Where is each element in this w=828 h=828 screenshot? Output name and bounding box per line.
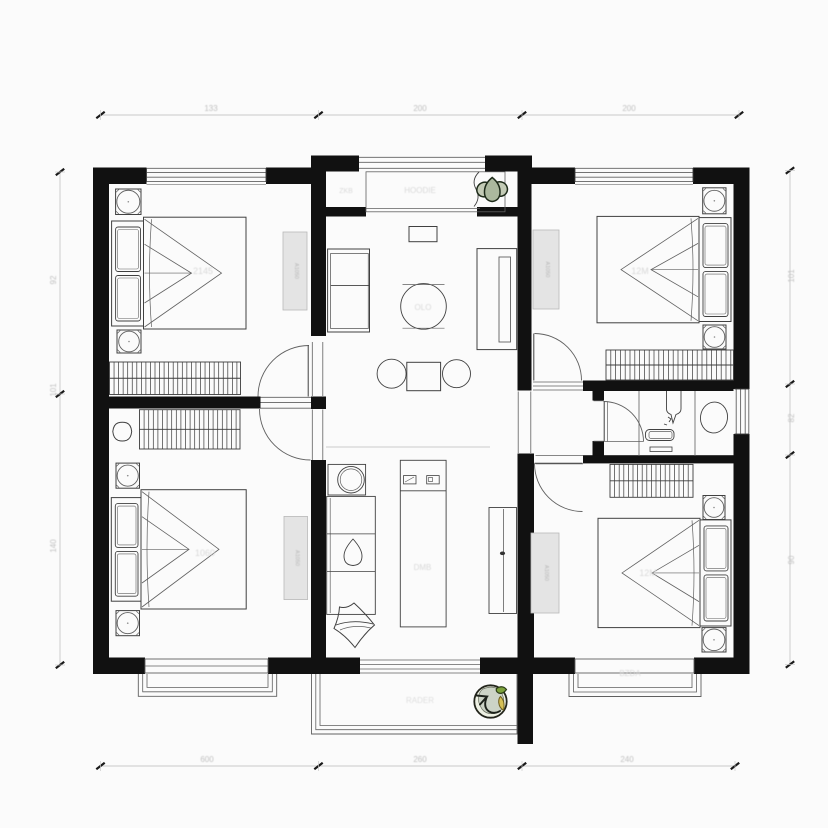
svg-text:600: 600 [200,755,214,764]
svg-text:200: 200 [622,104,636,113]
svg-text:101: 101 [49,383,58,397]
svg-text:A1050: A1050 [294,550,300,566]
svg-text:1060: 1060 [195,548,215,558]
svg-text:140: 140 [49,539,58,553]
svg-text:12M: 12M [631,266,649,276]
svg-text:92: 92 [49,275,58,284]
svg-text:200: 200 [413,104,427,113]
svg-text:A1050: A1050 [543,565,549,581]
svg-text:A1050: A1050 [293,263,299,279]
svg-text:260: 260 [413,755,427,764]
svg-text:133: 133 [204,104,218,113]
svg-text:82: 82 [787,413,796,422]
svg-text:2145: 2145 [193,266,213,276]
svg-text:HOODIE: HOODIE [404,186,436,195]
svg-text:A1050: A1050 [544,262,550,278]
svg-text:BZDA: BZDA [619,669,641,678]
svg-text:DMB: DMB [414,563,432,572]
svg-text:240: 240 [620,755,634,764]
svg-text:RADER: RADER [406,696,434,705]
svg-text:OLO: OLO [415,303,432,312]
svg-text:ZKB: ZKB [339,188,353,195]
svg-text:12M: 12M [639,568,657,578]
svg-text:101: 101 [787,269,796,283]
svg-text:90: 90 [787,555,796,564]
